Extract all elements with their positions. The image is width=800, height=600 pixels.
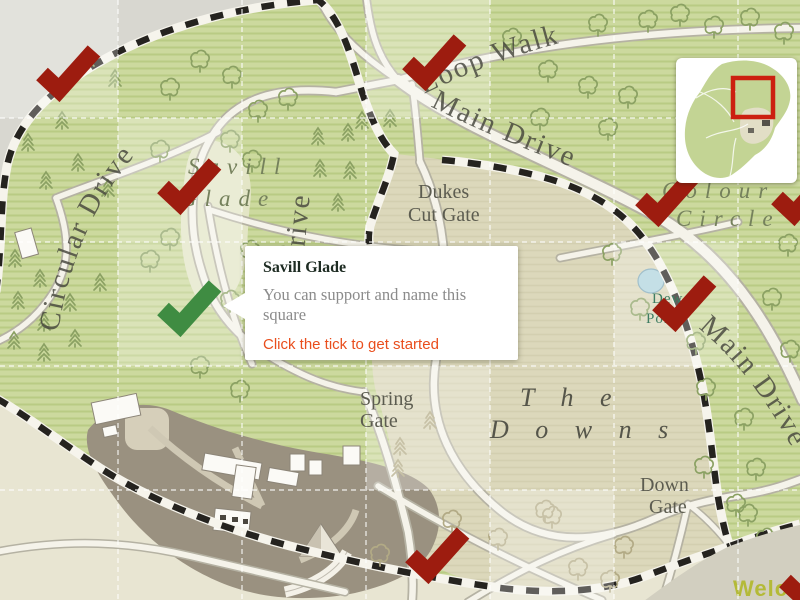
the-downs-label: T h e	[520, 383, 622, 412]
overview-minimap[interactable]	[676, 58, 797, 183]
tooltip-cta-link[interactable]: Click the tick to get started	[263, 336, 502, 353]
minimap-building	[762, 120, 770, 126]
svg-text:Circle: Circle	[676, 206, 781, 231]
svg-text:Gate: Gate	[649, 496, 687, 518]
svg-text:D o w n s: D o w n s	[489, 415, 678, 444]
minimap-building	[748, 128, 754, 133]
svg-text:Cut Gate: Cut Gate	[408, 204, 480, 226]
spring-gate-label: Spring	[360, 388, 413, 410]
down-gate-label: Down	[640, 474, 689, 496]
svg-text:Gate: Gate	[360, 410, 398, 432]
park-map[interactable]: Welcome Circular Drive Loop Walk Main Dr…	[0, 0, 800, 600]
tooltip-description: You can support and name this square	[263, 285, 502, 325]
tooltip-title: Savill Glade	[263, 259, 502, 277]
dukes-cut-gate-label: Dukes	[418, 181, 469, 203]
square-tooltip: Savill Glade You can support and name th…	[245, 246, 518, 360]
